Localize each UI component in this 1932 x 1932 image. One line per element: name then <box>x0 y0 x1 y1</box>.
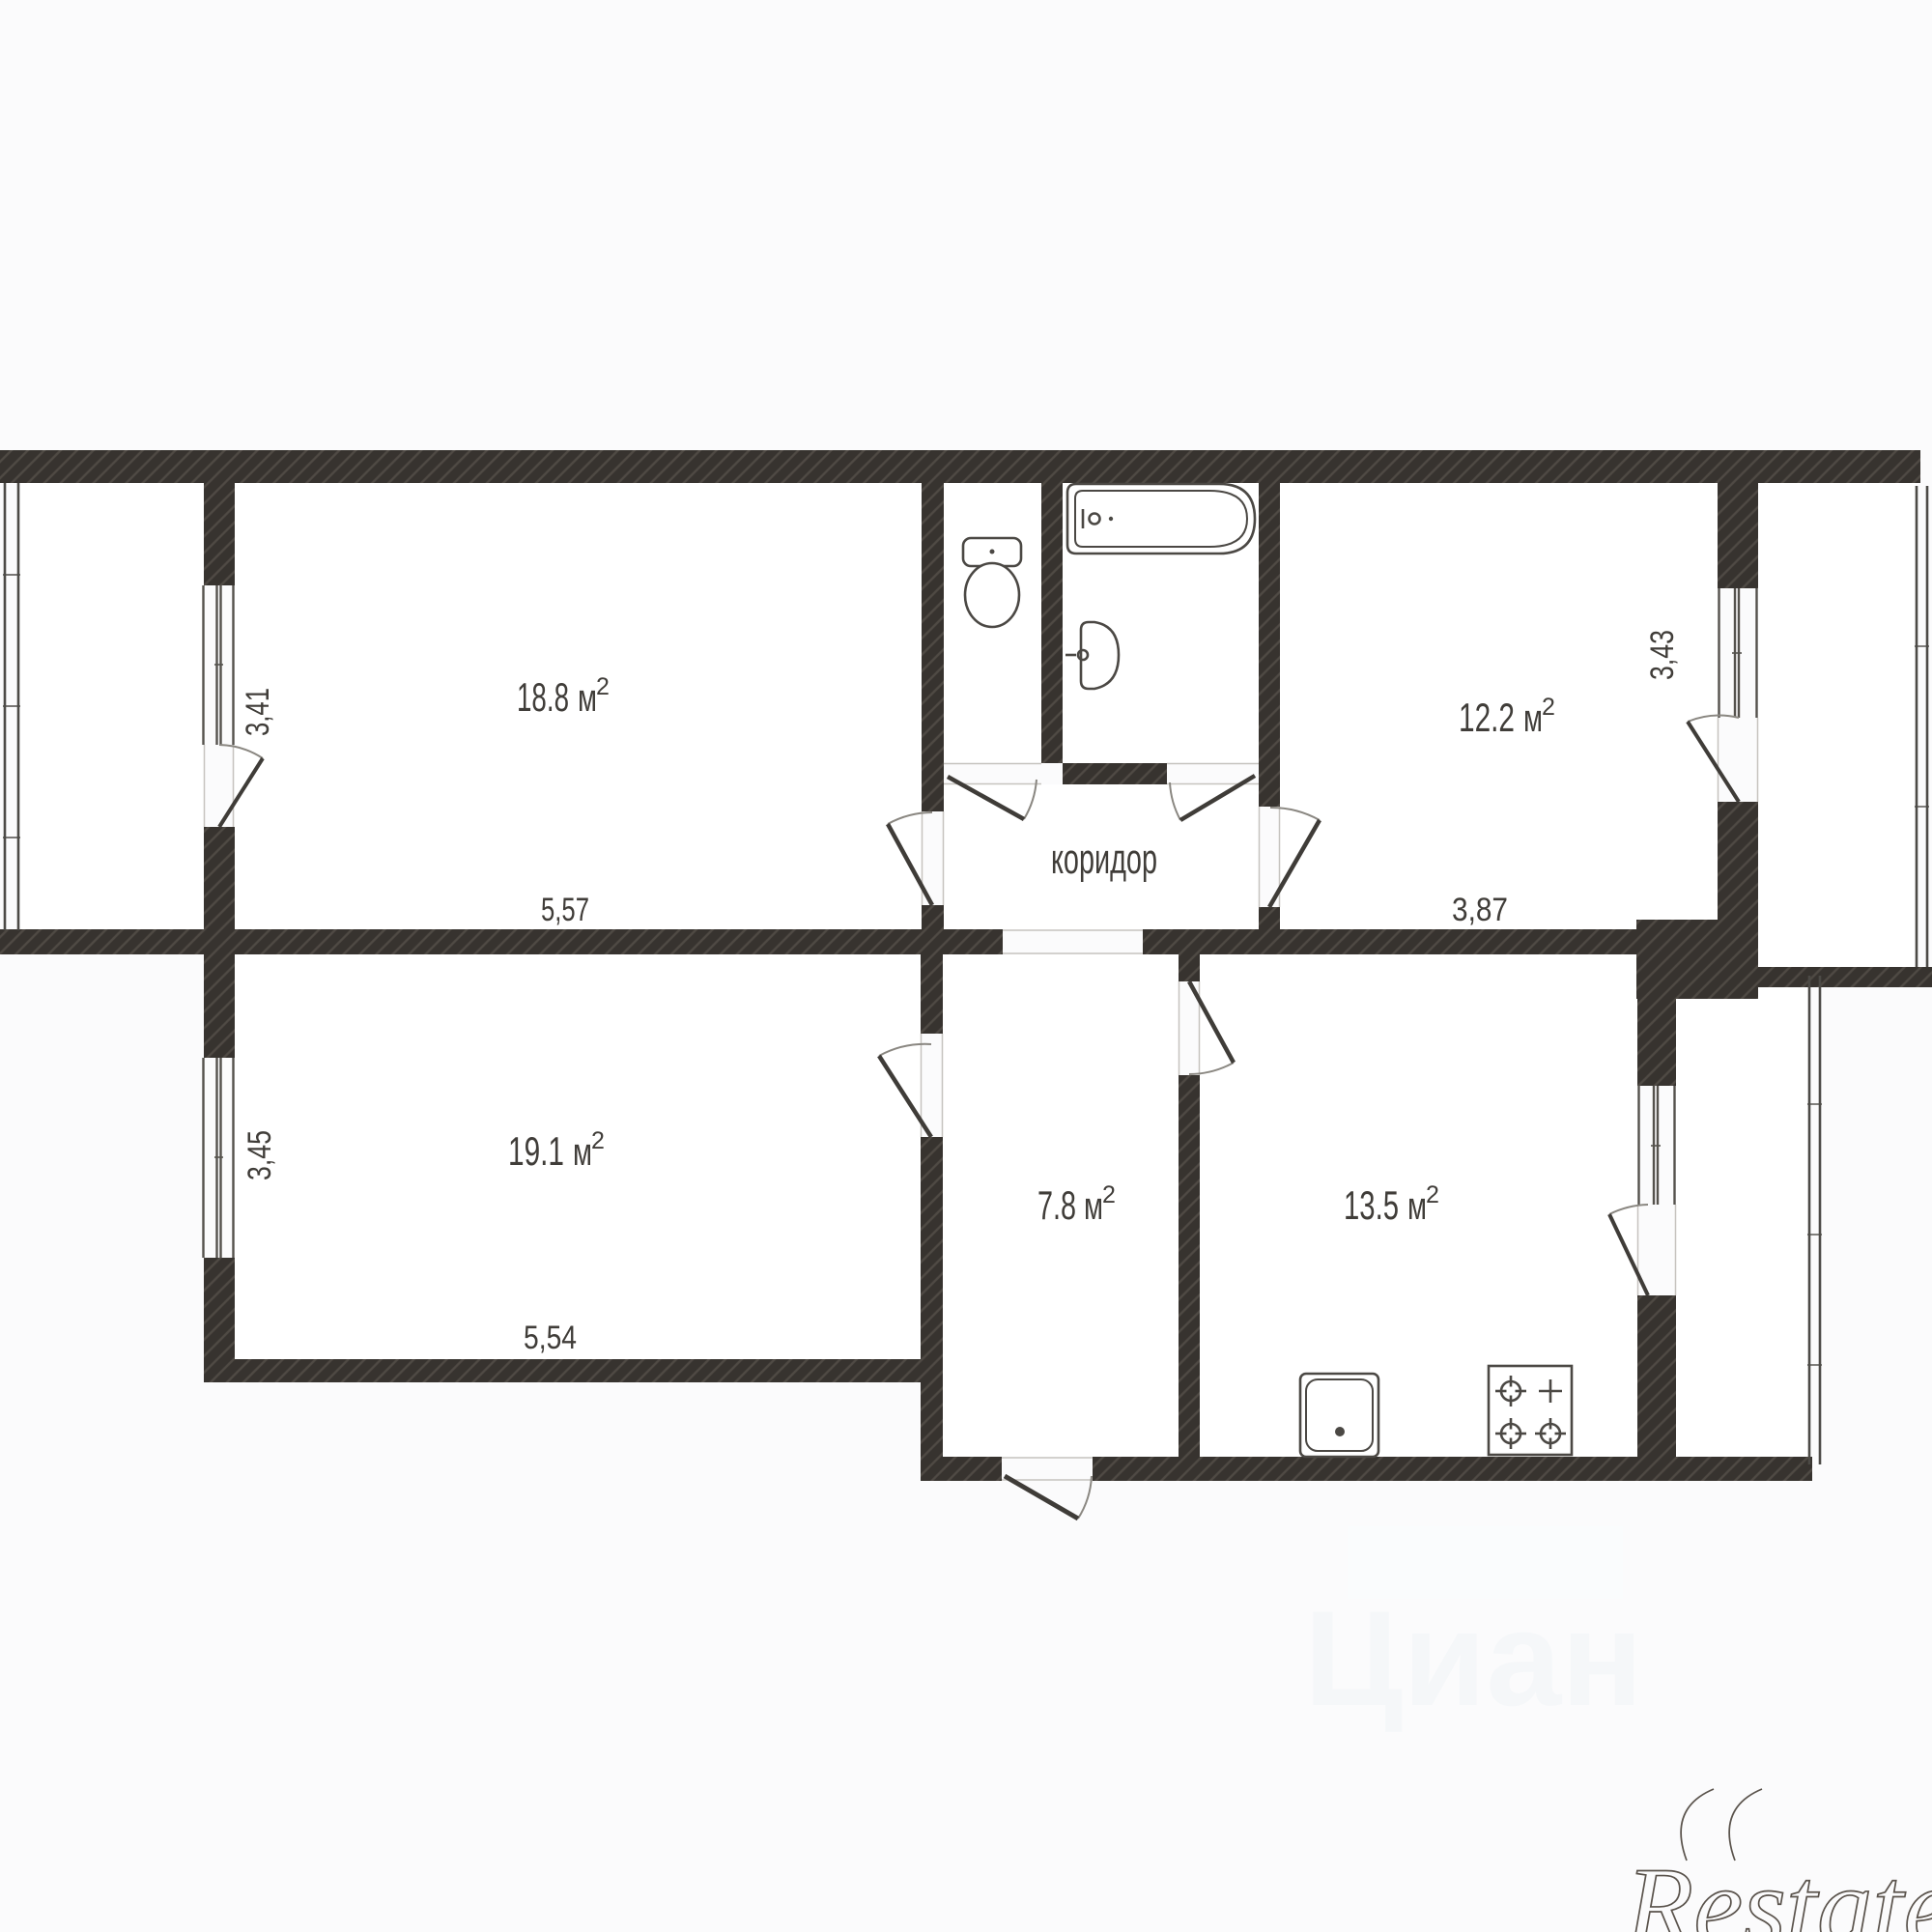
svg-text:13.5: 13.5 <box>1344 1182 1399 1228</box>
svg-text:м: м <box>1523 697 1543 740</box>
svg-text:12.2: 12.2 <box>1459 695 1515 740</box>
svg-text:м: м <box>1084 1185 1103 1228</box>
svg-text:2: 2 <box>1542 694 1555 721</box>
svg-text:18.8: 18.8 <box>517 674 569 720</box>
svg-text:м: м <box>1407 1185 1427 1228</box>
svg-text:19.1: 19.1 <box>508 1128 564 1174</box>
svg-text:2: 2 <box>596 673 610 700</box>
svg-text:м: м <box>578 677 597 720</box>
svg-text:2: 2 <box>591 1127 605 1154</box>
svg-text:Циан: Циан <box>1304 1582 1643 1734</box>
svg-text:2: 2 <box>1426 1181 1439 1208</box>
svg-text:3,45: 3,45 <box>241 1130 278 1180</box>
svg-text:5,57: 5,57 <box>541 892 589 928</box>
svg-text:2: 2 <box>1102 1181 1116 1208</box>
svg-text:5,54: 5,54 <box>524 1320 577 1356</box>
svg-text:3,87: 3,87 <box>1452 892 1508 928</box>
svg-text:м: м <box>573 1131 592 1174</box>
svg-text:7.8: 7.8 <box>1037 1182 1076 1228</box>
svg-text:3,41: 3,41 <box>240 688 276 736</box>
svg-text:3,43: 3,43 <box>1644 630 1681 680</box>
svg-text:Restate: Restate <box>1625 1845 1932 1932</box>
svg-text:коридор: коридор <box>1051 836 1157 883</box>
